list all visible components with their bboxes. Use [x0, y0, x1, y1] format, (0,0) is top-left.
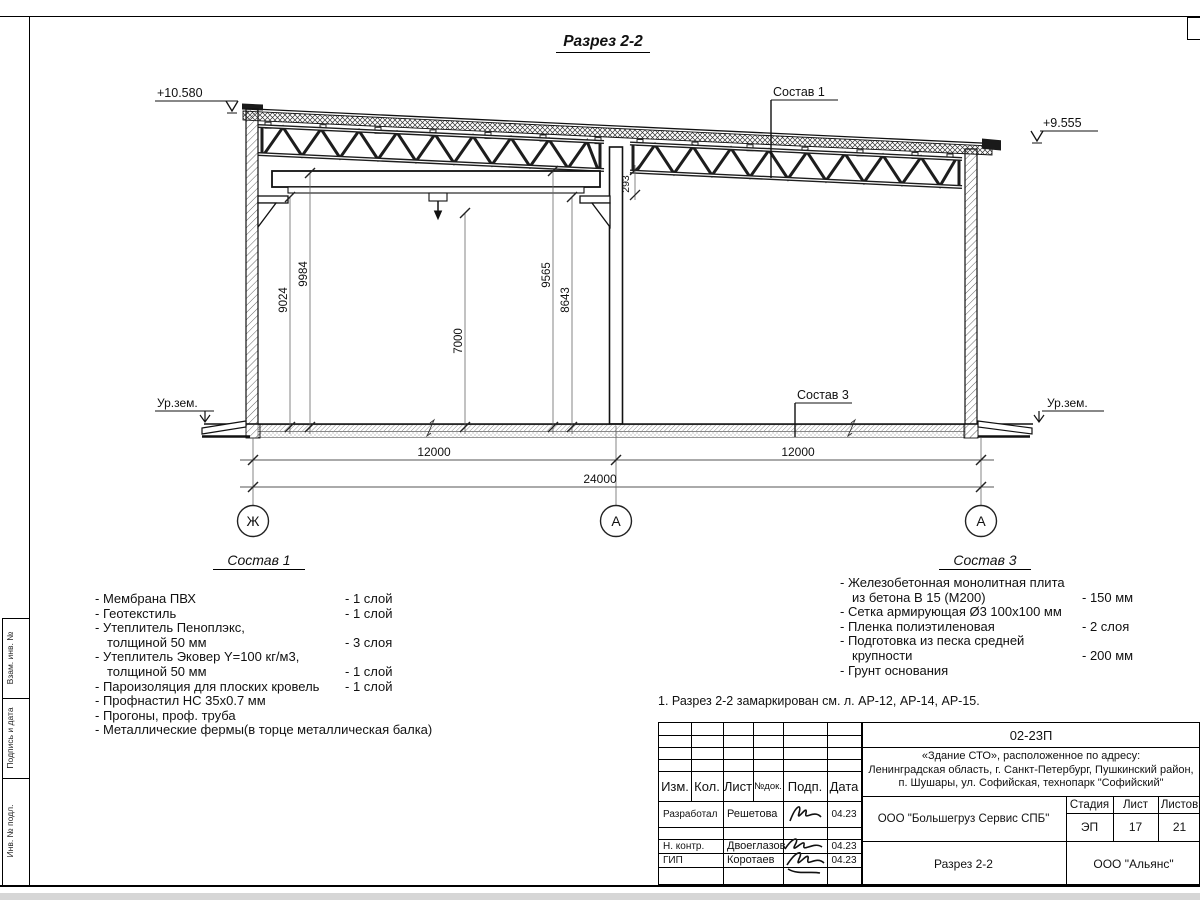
- row-name: Решетова: [727, 801, 783, 827]
- sheet-note: 1. Разрез 2-2 замаркирован см. л. АР-12,…: [658, 694, 980, 708]
- dim-total: 24000: [583, 472, 617, 486]
- dim-8643: 8643: [560, 287, 572, 313]
- list-item: - Металлические фермы(в торце металличес…: [95, 723, 440, 738]
- axis-a-middle: А: [611, 513, 621, 529]
- dim-9984: 9984: [298, 261, 310, 287]
- col-kol: Кол.: [691, 771, 723, 801]
- doc-number: 02-23П: [861, 723, 1200, 747]
- walls-columns: [242, 104, 1001, 425]
- crane-beam: [258, 171, 610, 227]
- sheets-value: 21: [1158, 813, 1200, 841]
- section-drawing: +10.580 +9.555 Состав 1 Состав 3 Ур.зем.…: [0, 0, 1200, 545]
- horizontal-dimensions: 12000 12000 24000 Ж А А: [238, 426, 997, 537]
- list-item: крупности- 200 мм: [840, 649, 1160, 664]
- stage-label: Стадия: [1066, 796, 1113, 813]
- company-name: ООО "Альянс": [1066, 841, 1200, 886]
- row-date: 04.23: [827, 839, 861, 853]
- list-item: из бетона В 15 (М200)- 150 мм: [840, 591, 1160, 606]
- stamp-label-inv: Инв. № подл.: [4, 780, 16, 882]
- signature: [786, 801, 826, 827]
- list-item: - Железобетонная монолитная плита: [840, 576, 1160, 591]
- list-item: толщиной 50 мм- 3 слоя: [95, 636, 440, 651]
- crane-hook: [435, 211, 442, 219]
- apron-left: [202, 421, 246, 434]
- col-podp: Подп.: [783, 771, 827, 801]
- signature: [782, 835, 828, 875]
- drawing-name: Разрез 2-2: [861, 841, 1066, 886]
- stamp-divider: [2, 778, 29, 779]
- axis-a-right: А: [976, 513, 986, 529]
- list-item: - Грунт основания: [840, 664, 1160, 679]
- stamp-label-vzam: Взам. инв. №: [4, 620, 16, 696]
- dim-9565: 9565: [541, 262, 553, 288]
- row-name: Двоеглазов: [727, 839, 783, 853]
- title-block: Изм. Кол. Лист №док. Подп. Дата Разработ…: [658, 722, 1200, 885]
- list-item: - Прогоны, проф. труба: [95, 709, 440, 724]
- row-role: Н. контр.: [663, 839, 723, 853]
- row-role: Разработал: [663, 801, 723, 827]
- col-data: Дата: [827, 771, 861, 801]
- roof-end-cap: [982, 139, 1001, 151]
- sostav3-heading: Состав 3: [939, 552, 1031, 570]
- elevation-left: +10.580: [157, 86, 203, 100]
- col-list: Лист: [723, 771, 753, 801]
- sostav1-heading: Состав 1: [213, 552, 305, 570]
- window-edge: [0, 893, 1200, 900]
- stamp-divider: [2, 698, 29, 699]
- sostav1-list: - Мембрана ПВХ- 1 слой - Геотекстиль- 1 …: [95, 592, 440, 738]
- list-item: - Сетка армирующая Ø3 100х100 мм: [840, 605, 1160, 620]
- axis-zh: Ж: [247, 513, 260, 529]
- right-wall: [965, 149, 977, 424]
- col-ndok: №док.: [753, 771, 783, 801]
- list-item: - Утеплитель Эковер Y=100 кг/м3,: [95, 650, 440, 665]
- stage-value: ЭП: [1066, 813, 1113, 841]
- dim-7000: 7000: [453, 328, 465, 354]
- ground-left: Ур.зем.: [157, 396, 198, 410]
- row-date: 04.23: [827, 853, 861, 867]
- stamp-divider: [2, 618, 29, 619]
- vertical-dimensions: 9024 9984 7000 9565 8643 293: [278, 165, 640, 434]
- list-item: - Профнастил НС 35х0.7 мм: [95, 694, 440, 709]
- list-item: - Утеплитель Пеноплэкс,: [95, 621, 440, 636]
- list-item: - Геотекстиль- 1 слой: [95, 607, 440, 622]
- callout-floor: Состав 3: [797, 388, 849, 402]
- row-date: 04.23: [827, 801, 861, 827]
- object-address: «Здание СТО», расположенное по адресу: Л…: [861, 750, 1200, 791]
- dim-span-left: 12000: [417, 445, 451, 459]
- dim-span-right: 12000: [781, 445, 815, 459]
- list-item: - Пароизоляция для плоских кровель- 1 сл…: [95, 680, 440, 695]
- stamp-left-line: [2, 618, 3, 885]
- row-role: ГИП: [663, 853, 723, 867]
- ground-right: Ур.зем.: [1047, 396, 1088, 410]
- dim-293: 293: [620, 175, 632, 193]
- org-name: ООО "Большегруз Сервис СПБ": [861, 796, 1066, 841]
- list-item: толщиной 50 мм- 1 слой: [95, 665, 440, 680]
- list-item: - Мембрана ПВХ- 1 слой: [95, 592, 440, 607]
- list-item: - Пленка полиэтиленовая- 2 слоя: [840, 620, 1160, 635]
- sheet-value: 17: [1113, 813, 1158, 841]
- apron-right: [978, 421, 1032, 434]
- sheet-label: Лист: [1113, 796, 1158, 813]
- sostav3-list: - Железобетонная монолитная плита из бет…: [840, 576, 1160, 678]
- elevation-right: +9.555: [1043, 116, 1082, 130]
- sheets-label: Листов: [1158, 796, 1200, 813]
- dim-9024: 9024: [278, 287, 290, 313]
- callout-roof: Состав 1: [773, 85, 825, 99]
- crane-trolley: [429, 193, 447, 201]
- row-name: Коротаев: [727, 853, 783, 867]
- list-item: - Подготовка из песка средней: [840, 634, 1160, 649]
- left-wall: [246, 109, 258, 424]
- col-izm: Изм.: [659, 771, 691, 801]
- drawing-sheet: Взам. инв. № Подпись и дата Инв. № подл.…: [0, 0, 1200, 900]
- stamp-label-podpis: Подпись и дата: [4, 700, 16, 776]
- ground-labels: Ур.зем. Ур.зем.: [155, 396, 1104, 422]
